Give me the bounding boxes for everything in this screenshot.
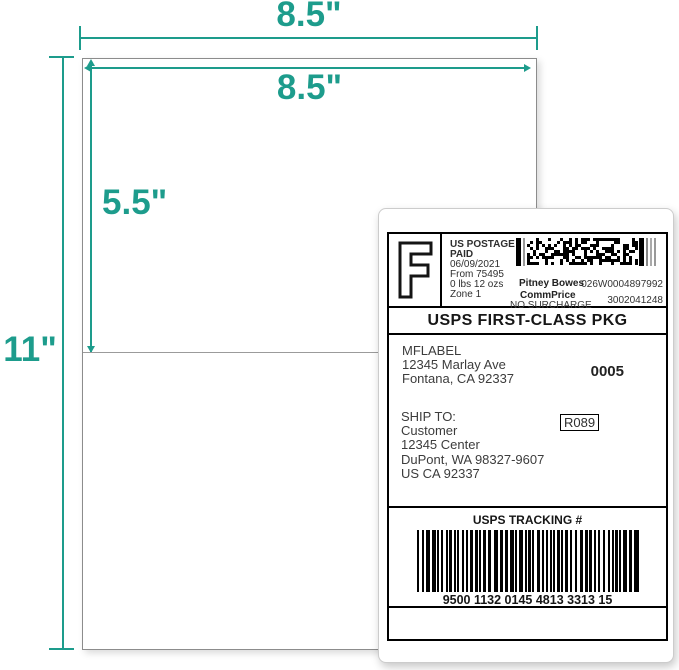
label-height-dimension-label: 5.5" [102,185,182,220]
label-sheet-diagram: 8.5" 11" 8.5" 5.5" [0,0,679,670]
blank-section [389,608,666,639]
service-name: USPS FIRST-CLASS PKG [427,312,627,330]
meter-id: 026W0004897992 [581,279,663,290]
sender-name: MFLABEL [402,344,514,358]
label-height-arrowhead-top [87,59,95,66]
sheet-width-dimension-line [79,37,538,39]
sheet-height-dimension-tick-top [49,56,74,58]
recipient-country: US CA 92337 [401,467,544,481]
sender-street: 12345 Marlay Ave [402,358,514,372]
account-id: 3002041248 [607,295,663,306]
sheet-width-dimension-tick-left [79,26,81,50]
sheet-width-dimension-tick-right [536,26,538,50]
batch-code: 0005 [591,363,624,380]
postage-section: US POSTAGE PAID 06/09/2021 From 75495 0 … [389,234,666,308]
shipping-label-card: US POSTAGE PAID 06/09/2021 From 75495 0 … [378,208,674,663]
sender-address: MFLABEL 12345 Marlay Ave Fontana, CA 923… [402,344,514,387]
postage-indicia-f-icon [396,240,434,300]
ship-to-address: SHIP TO: Customer 12345 Center DuPont, W… [401,410,544,481]
postage-indicia-box [389,234,442,306]
recipient-city: DuPont, WA 98327-9607 [401,453,544,467]
label-frame: US POSTAGE PAID 06/09/2021 From 75495 0 … [387,232,668,641]
carrier-name: Pitney Bowes [519,278,584,289]
recipient-street: 12345 Center [401,438,544,452]
tracking-heading: USPS TRACKING # [389,513,666,527]
recipient-name: Customer [401,424,544,438]
sheet-height-dimension-label: 11" [2,332,58,367]
label-height-arrow-line [90,66,92,353]
ship-to-heading: SHIP TO: [401,410,544,424]
postage-info: US POSTAGE PAID 06/09/2021 From 75495 0 … [450,240,515,300]
tracking-barcode [417,530,639,592]
tracking-section: USPS TRACKING # 9500 1132 0145 4813 3313… [389,508,666,608]
postage-2d-barcode [516,238,658,266]
sheet-width-dimension-label: 8.5" [239,0,379,32]
sheet-height-dimension-line [62,57,64,650]
postage-line: Zone 1 [450,290,515,300]
address-section: MFLABEL 12345 Marlay Ave Fontana, CA 923… [389,335,666,508]
route-code: R089 [560,414,599,431]
label-width-dimension-label: 8.5" [83,70,536,105]
sheet-height-dimension-tick-bottom [49,648,74,650]
service-banner: USPS FIRST-CLASS PKG [389,308,666,335]
tracking-number: 9500 1132 0145 4813 3313 15 [389,593,666,607]
sender-city: Fontana, CA 92337 [402,372,514,386]
